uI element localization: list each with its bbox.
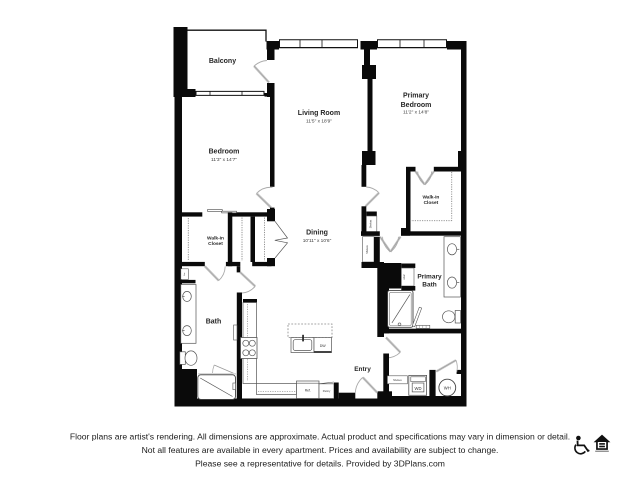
svg-text:Walk-In: Walk-In bbox=[207, 235, 224, 241]
svg-text:WD: WD bbox=[415, 386, 422, 391]
svg-text:Bath: Bath bbox=[422, 282, 436, 289]
svg-text:Primary: Primary bbox=[403, 93, 429, 100]
svg-text:Floor plans are artist's rende: Floor plans are artist's rendering. All … bbox=[70, 431, 570, 441]
svg-text:11'5" x 18'9": 11'5" x 18'9" bbox=[306, 119, 332, 125]
svg-text:Bedroom: Bedroom bbox=[209, 149, 240, 156]
svg-text:Pantry: Pantry bbox=[323, 389, 331, 393]
svg-text:Shelves: Shelves bbox=[370, 219, 373, 228]
svg-text:DW: DW bbox=[320, 344, 327, 348]
svg-text:Closet: Closet bbox=[424, 200, 439, 206]
svg-text:Entry: Entry bbox=[354, 366, 371, 373]
svg-text:Dining: Dining bbox=[306, 230, 328, 237]
svg-text:Balcony: Balcony bbox=[209, 58, 236, 65]
svg-text:Linen: Linen bbox=[403, 273, 406, 280]
svg-text:Shelves: Shelves bbox=[366, 244, 369, 253]
svg-text:Primary: Primary bbox=[417, 274, 442, 281]
svg-text:Living Room: Living Room bbox=[298, 110, 340, 117]
svg-text:Ref.: Ref. bbox=[305, 389, 311, 393]
svg-text:Bath: Bath bbox=[206, 319, 222, 326]
svg-text:11'2" x 14'8": 11'2" x 14'8" bbox=[403, 110, 429, 116]
svg-text:10'11" x 10'6": 10'11" x 10'6" bbox=[303, 238, 332, 244]
svg-text:Please see a representative fo: Please see a representative for details.… bbox=[195, 458, 445, 468]
svg-text:WH: WH bbox=[444, 385, 451, 390]
svg-text:Bedroom: Bedroom bbox=[401, 102, 432, 109]
svg-text:11'3" x 14'7": 11'3" x 14'7" bbox=[211, 157, 237, 163]
svg-text:Walk-In: Walk-In bbox=[422, 195, 439, 201]
svg-text:Closet: Closet bbox=[208, 241, 223, 247]
svg-text:Shelves: Shelves bbox=[393, 379, 402, 382]
svg-text:Not all features are available: Not all features are available in every … bbox=[142, 445, 499, 455]
